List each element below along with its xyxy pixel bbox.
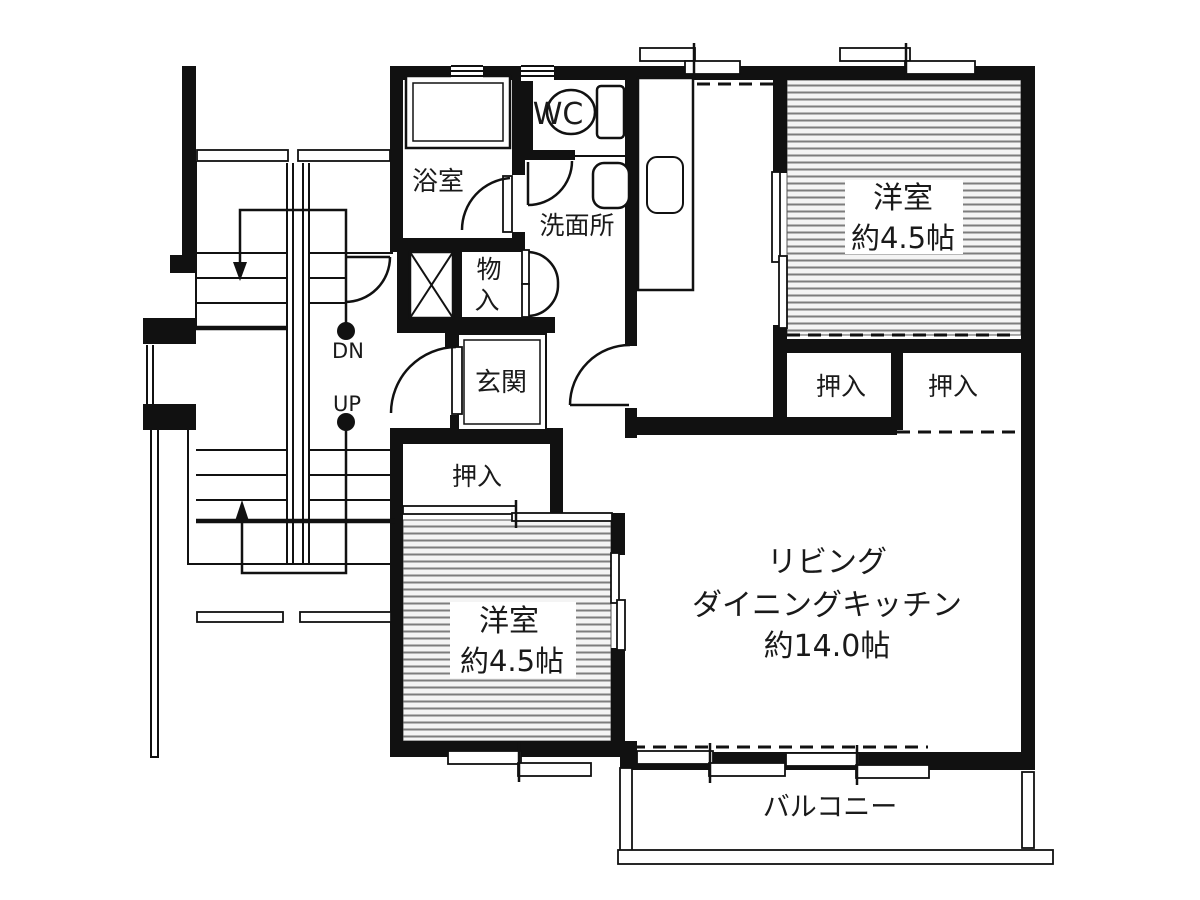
stair-railing-top-right [298,150,390,161]
label-entrance: 玄関 [475,368,527,398]
storage-door-leaf-upper [522,250,529,284]
top-sliding-window-2 [840,48,910,61]
ldk-balcony-window-2 [786,753,859,766]
label-washroom: 洗面所 [539,211,614,240]
balcony-left-edge [620,768,632,863]
label-western-sw-name: 洋室 [479,604,539,639]
top-sliding-window-1 [640,48,695,61]
stair-railing-bottom-left [197,612,283,622]
ne-room-sliding-panel-2 [779,256,787,328]
label-stair-dn: DN [332,339,364,363]
label-closet-west: 押入 [452,462,502,491]
sw-room-window [448,751,521,764]
entrance-door-leaf [452,347,462,414]
balcony-right-partition [1022,772,1034,848]
label-balcony: バルコニー [763,792,897,823]
bath-door-leaf [503,176,512,232]
floor-plan: 浴室 WC 洗面所 物 入 玄関 押入 押入 押入 洋室 約4.5帖 洋室 約4… [0,0,1200,900]
label-closet-south-left: 押入 [816,372,866,401]
label-storage-char1: 物 [476,255,501,284]
sw-room-sliding-panel-1 [611,553,619,603]
sw-closet-sliding-1 [403,506,516,514]
stair-dn-dot [337,322,355,340]
label-western-sw-size: 約4.5帖 [460,644,564,678]
washbasin [593,163,629,208]
label-western-ne-size: 約4.5帖 [851,221,955,255]
ne-room-sliding-panel-1 [772,172,780,262]
label-closet-south-right: 押入 [928,372,978,401]
storage-door-leaf-lower [522,284,529,317]
sw-closet-sliding-2 [512,513,612,521]
ldk-balcony-window-1 [637,751,713,764]
label-western-ne-name: 洋室 [873,181,933,216]
label-wc: WC [533,97,584,132]
kitchen-sink [647,157,683,213]
stair-railing-bottom-right [300,612,391,622]
label-ldk-line1: リビング [767,545,887,580]
label-bath: 浴室 [412,167,464,197]
sw-room-sliding-panel-2 [617,600,625,650]
bathtub [406,76,510,148]
label-ldk-line3: 約14.0帖 [764,629,891,664]
stair-railing-top-left [197,150,288,161]
label-ldk-line2: ダイニングキッチン [692,588,962,623]
balcony-bottom-edge [618,850,1053,864]
label-storage-char2: 入 [474,286,499,315]
toilet-tank [597,86,624,138]
label-stair-up: UP [333,392,361,416]
